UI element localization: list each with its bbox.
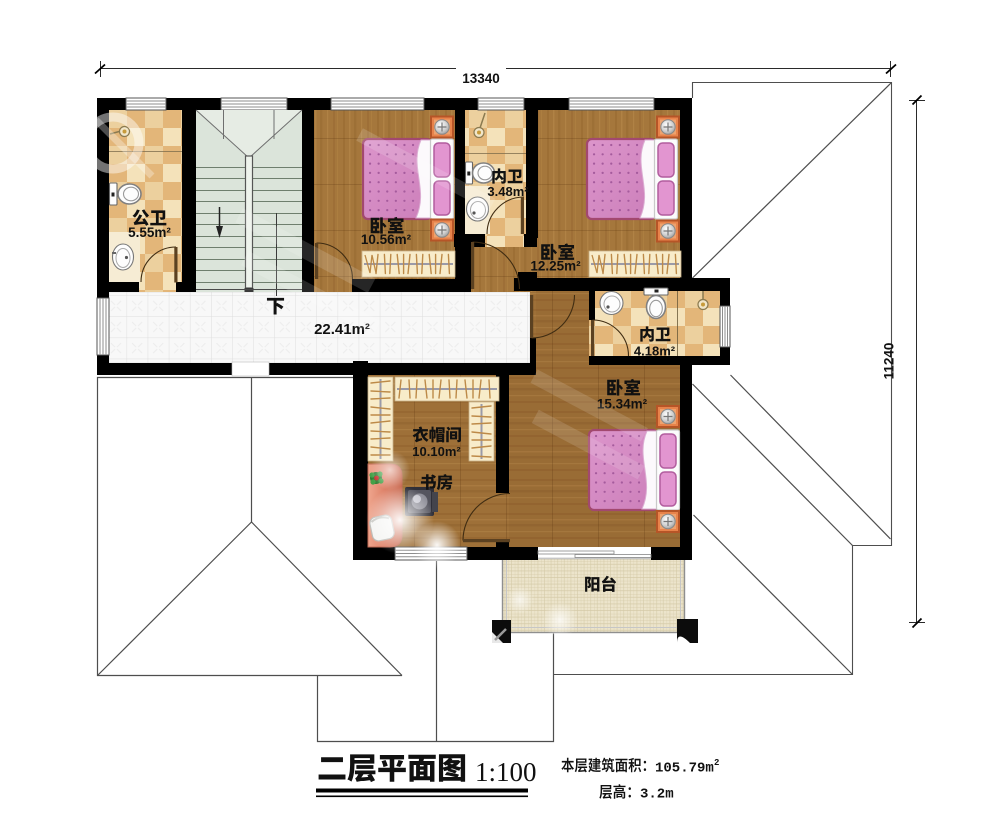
svg-text:12.25m²: 12.25m² [530,259,581,274]
svg-text:5.55m²: 5.55m² [128,225,171,240]
svg-text:3.2m: 3.2m [640,787,674,803]
svg-text:2: 2 [714,758,719,768]
svg-text:11240: 11240 [882,343,897,380]
svg-text:10.56m²: 10.56m² [361,232,412,247]
svg-text:13340: 13340 [462,71,500,86]
svg-text:4.18m²: 4.18m² [634,344,676,359]
svg-text:1:100: 1:100 [475,757,537,787]
svg-text:3.48m²: 3.48m² [487,184,529,199]
svg-text:10.10m²: 10.10m² [412,444,461,459]
svg-text:105.79m: 105.79m [655,761,714,777]
